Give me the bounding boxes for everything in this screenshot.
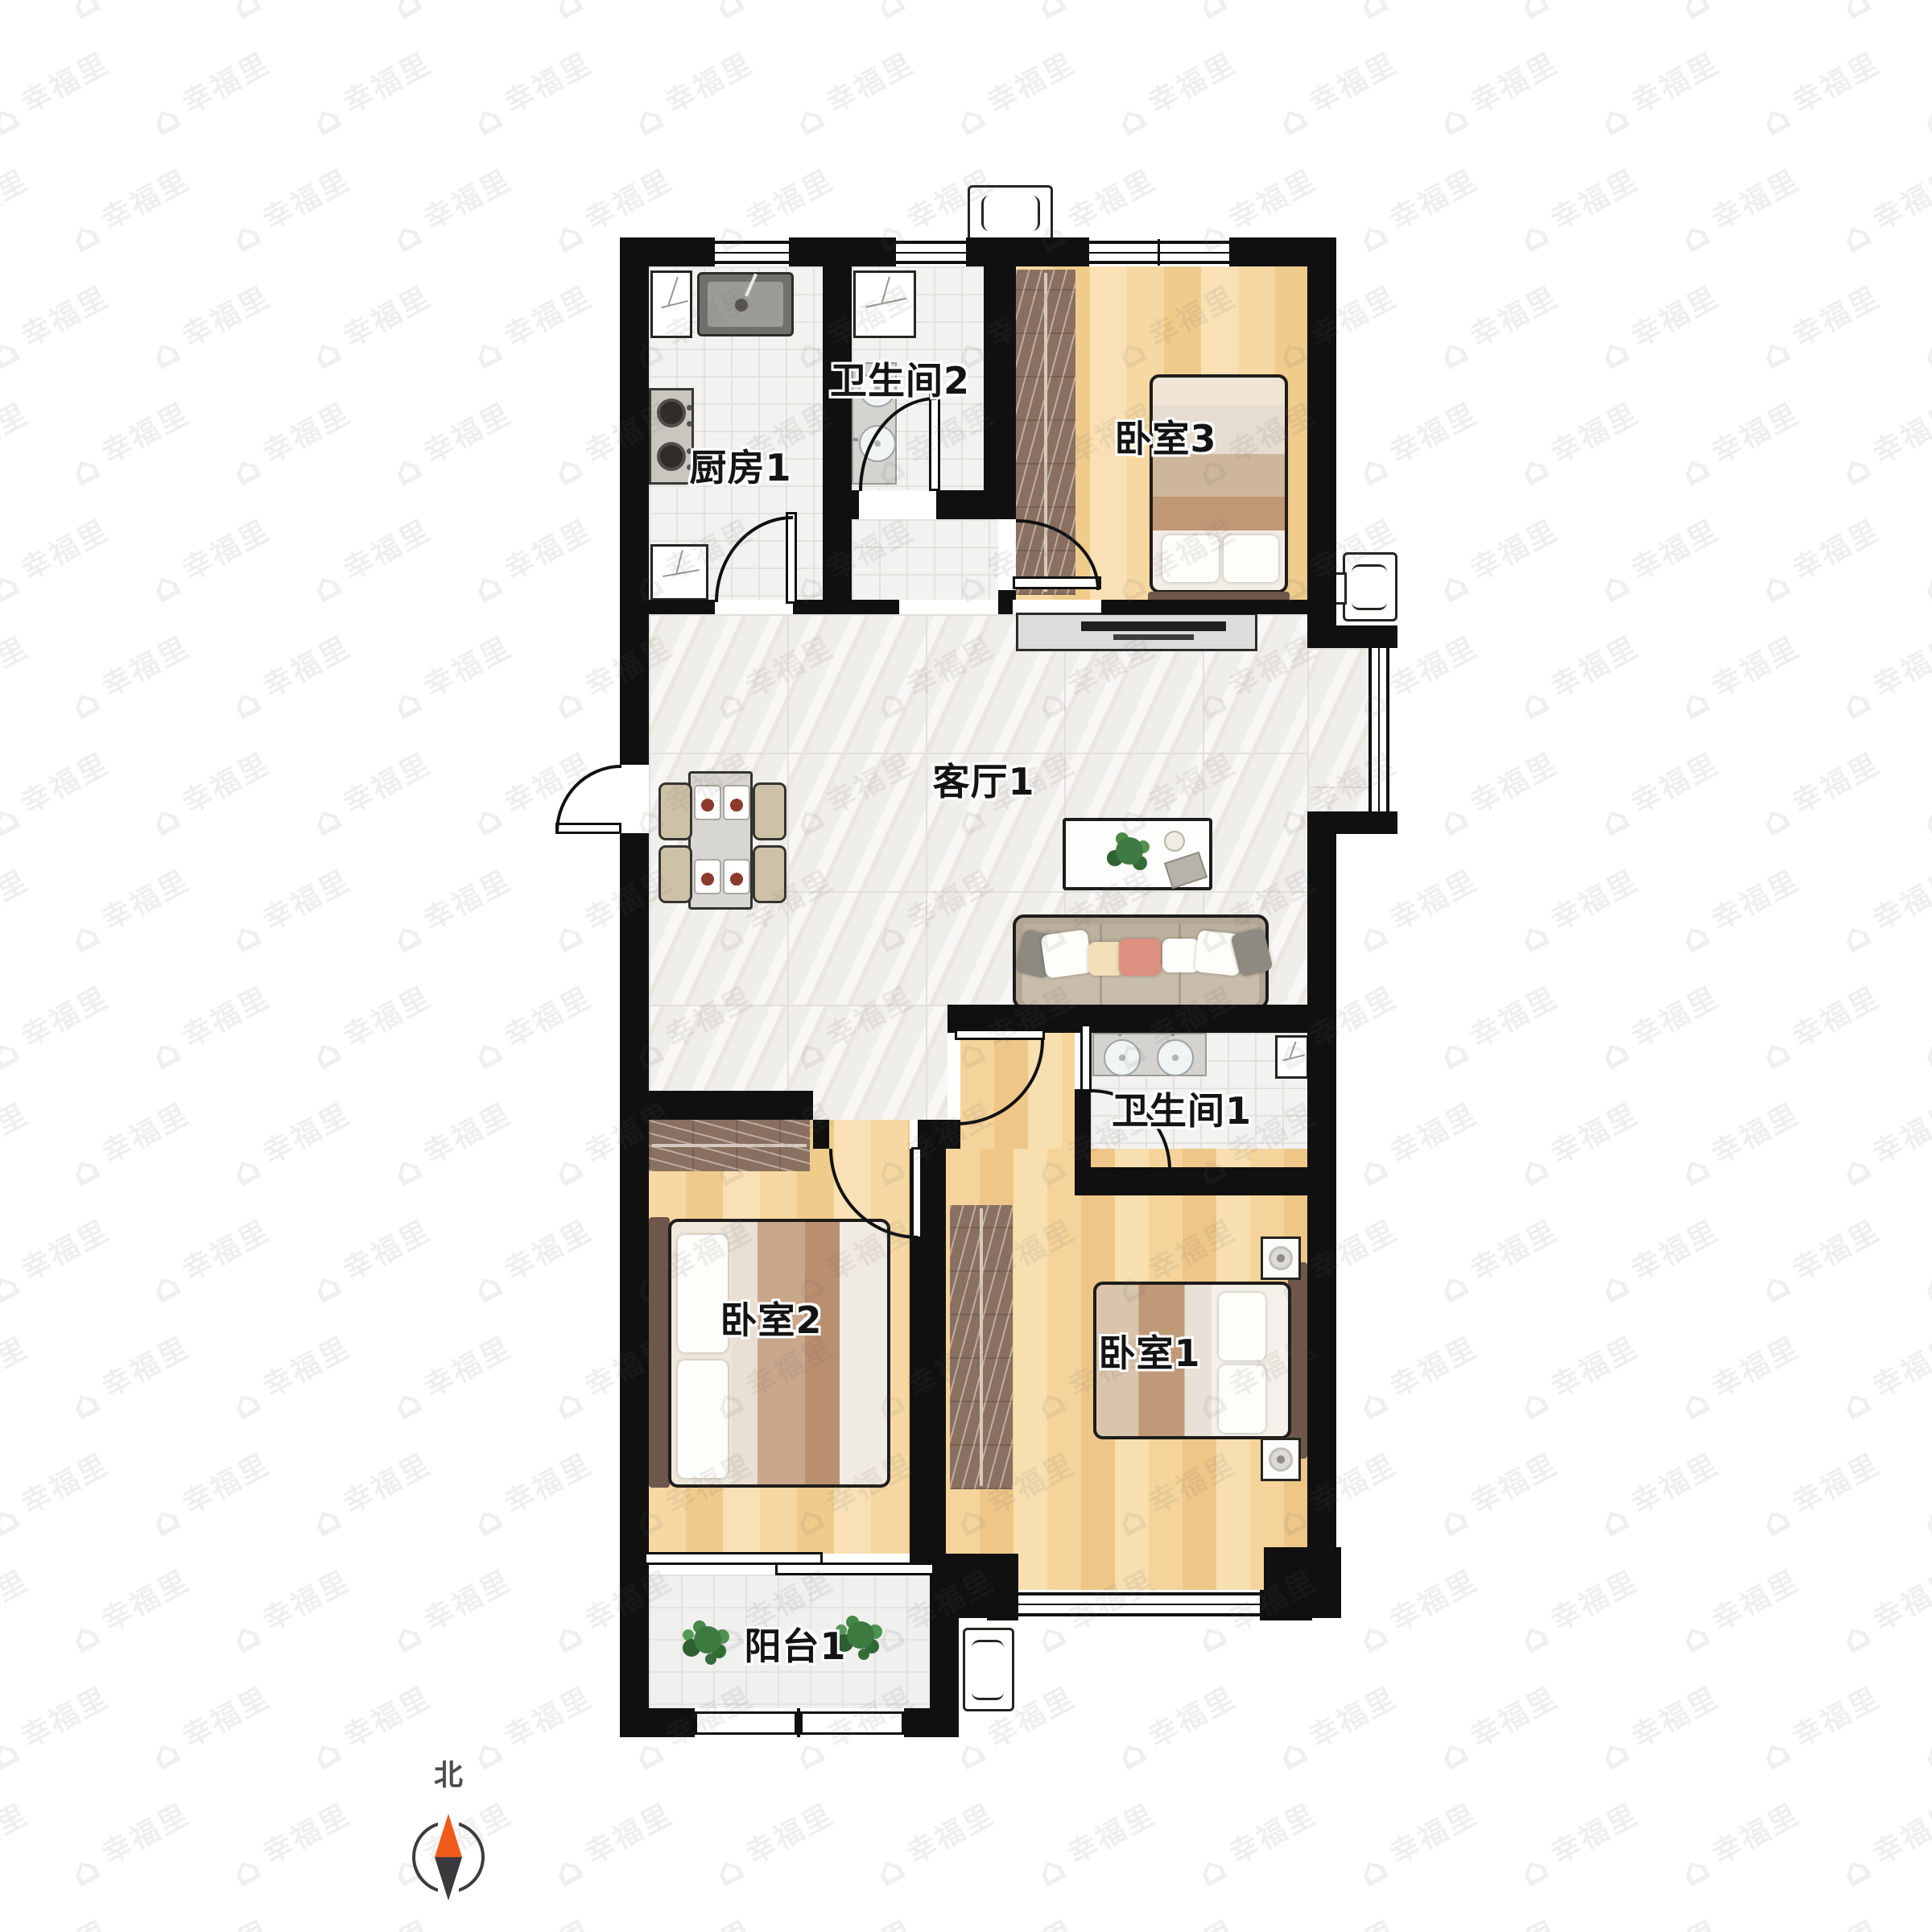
watermark: ⌂幸福里 <box>60 0 199 28</box>
wall-bathroom1-left <box>1075 1089 1091 1175</box>
house-icon: ⌂ <box>546 1843 592 1896</box>
watermark: ⌂幸福里 <box>1509 157 1648 261</box>
house-icon: ⌂ <box>1753 559 1799 612</box>
ac-unit-icon <box>963 1628 1014 1711</box>
house-icon: ⌂ <box>304 559 350 612</box>
house-icon: ⌂ <box>465 93 511 145</box>
watermark: ⌂幸福里 <box>1348 157 1487 261</box>
watermark: ⌂幸福里 <box>463 1674 601 1778</box>
dining-table <box>688 771 753 910</box>
house-icon: ⌂ <box>1834 1843 1880 1896</box>
house-icon: ⌂ <box>143 93 189 145</box>
watermark: ⌂幸福里 <box>302 1441 440 1545</box>
house-icon: ⌂ <box>1673 1143 1719 1195</box>
house-icon: ⌂ <box>304 1260 350 1312</box>
watermark: ⌂幸福里 <box>1912 741 1932 844</box>
house-icon: ⌂ <box>385 910 431 962</box>
watermark: ⌂幸福里 <box>946 1908 1084 1932</box>
house-icon: ⌂ <box>1109 1727 1155 1779</box>
wall-top <box>789 237 896 266</box>
watermark: ⌂幸福里 <box>382 157 521 261</box>
sofa <box>1013 914 1269 1009</box>
house-icon: ⌂ <box>0 793 28 845</box>
watermark: ⌂幸福里 <box>1107 1674 1245 1778</box>
house-icon: ⌂ <box>1753 1026 1799 1079</box>
house-icon: ⌂ <box>143 1026 189 1079</box>
watermark: ⌂幸福里 <box>1831 390 1932 494</box>
watermark: ⌂幸福里 <box>1348 1091 1487 1195</box>
house-icon: ⌂ <box>1109 93 1155 145</box>
house-icon: ⌂ <box>1512 1843 1558 1896</box>
house-icon: ⌂ <box>63 1377 109 1429</box>
house-icon: ⌂ <box>1431 326 1477 378</box>
watermark: ⌂幸福里 <box>1348 390 1487 494</box>
house-icon: ⌂ <box>1834 443 1880 495</box>
house-icon: ⌂ <box>465 326 511 378</box>
house-icon: ⌂ <box>707 1843 753 1896</box>
watermark: ⌂幸福里 <box>0 1908 119 1932</box>
watermark: ⌂幸福里 <box>1509 1558 1648 1662</box>
watermark: ⌂幸福里 <box>221 1558 360 1662</box>
bay-floor <box>1307 648 1368 811</box>
watermark: ⌂幸福里 <box>543 0 682 28</box>
watermark: ⌂幸福里 <box>1348 857 1487 961</box>
watermark: ⌂幸福里 <box>1912 1908 1932 1932</box>
watermark: ⌂幸福里 <box>1912 274 1932 378</box>
house-icon: ⌂ <box>143 559 189 612</box>
house-icon: ⌂ <box>143 1260 189 1312</box>
watermark: ⌂幸福里 <box>1107 1908 1245 1932</box>
watermark: ⌂幸福里 <box>60 390 199 494</box>
house-icon: ⌂ <box>465 559 511 612</box>
watermark: ⌂幸福里 <box>221 624 360 728</box>
window-mullion <box>1158 239 1160 266</box>
watermark: ⌂幸福里 <box>221 1324 360 1428</box>
watermark: ⌂幸福里 <box>1751 507 1889 611</box>
watermark: ⌂幸福里 <box>221 0 360 28</box>
watermark: ⌂幸福里 <box>1590 1674 1728 1778</box>
wall-bedroom3-left-stub <box>998 590 1016 600</box>
floorplan-canvas: 厨房1 卫生间2 卧室3 客厅1 卫生间1 卧室2 卧室1 阳台1 北 ⌂幸福里… <box>0 0 1932 1932</box>
kitchen-cabinet-icon <box>650 270 692 338</box>
house-icon: ⌂ <box>385 209 431 262</box>
house-icon: ⌂ <box>1753 793 1799 845</box>
house-icon: ⌂ <box>1431 1493 1477 1546</box>
watermark: ⌂幸福里 <box>60 1558 199 1662</box>
watermark: ⌂幸福里 <box>1590 1441 1728 1545</box>
bathroom1-vanity <box>1092 1033 1207 1076</box>
house-icon: ⌂ <box>0 559 28 612</box>
house-icon: ⌂ <box>304 1493 350 1546</box>
watermark: ⌂幸福里 <box>60 857 199 961</box>
house-icon: ⌂ <box>1673 1843 1719 1896</box>
balcony-window <box>800 1711 904 1735</box>
house-icon: ⌂ <box>626 93 672 145</box>
watermark: ⌂幸福里 <box>1509 390 1648 494</box>
bedroom2-bed-headboard <box>649 1217 670 1488</box>
watermark: ⌂幸福里 <box>1751 974 1889 1078</box>
balcony-window <box>695 1711 797 1735</box>
watermark: ⌂幸福里 <box>0 974 119 1078</box>
house-icon: ⌂ <box>1834 910 1880 962</box>
watermark: ⌂幸福里 <box>624 1908 762 1932</box>
house-icon: ⌂ <box>1673 676 1719 729</box>
house-icon: ⌂ <box>304 93 350 145</box>
watermark: ⌂幸福里 <box>1268 40 1406 144</box>
house-icon: ⌂ <box>304 793 350 845</box>
watermark: ⌂幸福里 <box>0 274 119 378</box>
house-icon: ⌂ <box>1431 1260 1477 1312</box>
watermark: ⌂幸福里 <box>60 157 199 261</box>
house-icon: ⌂ <box>546 443 592 495</box>
watermark: ⌂幸福里 <box>60 1324 199 1428</box>
house-icon: ⌂ <box>1351 1843 1397 1896</box>
house-icon: ⌂ <box>1753 93 1799 145</box>
room-label-kitchen: 厨房1 <box>689 439 791 492</box>
tv-console <box>1016 613 1257 651</box>
watermark: ⌂幸福里 <box>0 390 39 494</box>
watermark: ⌂幸福里 <box>141 1908 279 1932</box>
dining-chair <box>753 782 786 840</box>
washing-machine-icon <box>853 270 916 338</box>
house-icon: ⌂ <box>1512 443 1558 495</box>
house-icon: ⌂ <box>1592 1493 1638 1546</box>
house-icon: ⌂ <box>546 1610 592 1662</box>
watermark: ⌂幸福里 <box>543 1791 682 1895</box>
watermark: ⌂幸福里 <box>0 624 39 728</box>
watermark: ⌂幸福里 <box>1026 0 1165 28</box>
wall-bedroom1-bottom <box>1260 1590 1312 1620</box>
watermark: ⌂幸福里 <box>1751 274 1889 378</box>
house-icon: ⌂ <box>948 93 994 145</box>
house-icon: ⌂ <box>1914 793 1932 845</box>
watermark: ⌂幸福里 <box>0 1558 39 1662</box>
watermark: ⌂幸福里 <box>0 0 39 28</box>
house-icon: ⌂ <box>546 0 592 28</box>
house-icon: ⌂ <box>1431 93 1477 145</box>
watermark: ⌂幸福里 <box>0 40 119 144</box>
house-icon: ⌂ <box>1753 1727 1799 1779</box>
watermark: ⌂幸福里 <box>141 274 279 378</box>
wall-bedroom2-top <box>813 1120 829 1149</box>
house-icon: ⌂ <box>63 910 109 962</box>
house-icon: ⌂ <box>143 793 189 845</box>
house-icon: ⌂ <box>63 443 109 495</box>
house-icon: ⌂ <box>1914 559 1932 612</box>
wall-bathroom1-bottom <box>1075 1167 1307 1195</box>
watermark: ⌂幸福里 <box>1590 1207 1728 1311</box>
house-icon: ⌂ <box>304 1727 350 1779</box>
house-icon: ⌂ <box>465 1260 511 1312</box>
shower-icon <box>1275 1035 1309 1079</box>
house-icon: ⌂ <box>385 1143 431 1195</box>
watermark: ⌂幸福里 <box>1429 741 1567 844</box>
house-icon: ⌂ <box>304 326 350 378</box>
house-icon: ⌂ <box>546 910 592 962</box>
house-icon: ⌂ <box>1592 559 1638 612</box>
watermark: ⌂幸福里 <box>1187 0 1326 28</box>
house-icon: ⌂ <box>1753 1493 1799 1546</box>
ac-unit-icon <box>968 185 1053 245</box>
house-icon: ⌂ <box>1351 910 1397 962</box>
watermark: ⌂幸福里 <box>1831 1324 1932 1428</box>
lamp-icon <box>1269 1447 1293 1472</box>
house-icon: ⌂ <box>1190 1843 1236 1896</box>
house-icon: ⌂ <box>0 1026 28 1079</box>
watermark: ⌂幸福里 <box>1509 1324 1648 1428</box>
wall-bedroom2-top <box>620 1091 813 1120</box>
watermark: ⌂幸福里 <box>1751 1441 1889 1545</box>
bathroom2-window <box>896 241 966 264</box>
watermark: ⌂幸福里 <box>1348 0 1487 28</box>
house-icon: ⌂ <box>224 1377 270 1429</box>
watermark: ⌂幸福里 <box>1348 1558 1487 1662</box>
nightstand <box>1261 1236 1301 1280</box>
watermark: ⌂幸福里 <box>0 157 39 261</box>
watermark: ⌂幸福里 <box>1509 857 1648 961</box>
watermark: ⌂幸福里 <box>1751 40 1889 144</box>
house-icon: ⌂ <box>385 676 431 729</box>
watermark: ⌂幸福里 <box>141 1441 279 1545</box>
watermark: ⌂幸福里 <box>382 0 521 28</box>
watermark: ⌂幸福里 <box>865 0 1004 28</box>
watermark: ⌂幸福里 <box>141 974 279 1078</box>
watermark: ⌂幸福里 <box>1509 1791 1648 1895</box>
house-icon: ⌂ <box>546 676 592 729</box>
bedroom1-window <box>1018 1592 1260 1616</box>
bedroom2-wardrobe <box>649 1120 810 1171</box>
watermark: ⌂幸福里 <box>60 1091 199 1195</box>
watermark: ⌂幸福里 <box>302 1207 440 1311</box>
wall-bay-bottom <box>1307 811 1397 834</box>
house-icon: ⌂ <box>1270 1727 1316 1779</box>
watermark: ⌂幸福里 <box>1912 974 1932 1078</box>
house-icon: ⌂ <box>304 1026 350 1079</box>
watermark: ⌂幸福里 <box>382 1558 521 1662</box>
watermark: ⌂幸福里 <box>463 507 601 611</box>
livingroom-bay-window <box>1368 648 1389 811</box>
house-icon: ⌂ <box>546 1143 592 1195</box>
house-icon: ⌂ <box>1351 1377 1397 1429</box>
watermark: ⌂幸福里 <box>1429 507 1567 611</box>
house-icon: ⌂ <box>787 93 833 145</box>
house-icon: ⌂ <box>1673 1610 1719 1662</box>
watermark: ⌂幸福里 <box>302 507 440 611</box>
wall-bedroom2-top <box>918 1120 960 1149</box>
house-icon: ⌂ <box>63 1610 109 1662</box>
watermark: ⌂幸福里 <box>463 40 601 144</box>
watermark: ⌂幸福里 <box>1429 1908 1567 1932</box>
watermark: ⌂幸福里 <box>0 1207 119 1311</box>
house-icon: ⌂ <box>1431 559 1477 612</box>
watermark: ⌂幸福里 <box>0 1324 39 1428</box>
wall-bathroom2-bottom <box>823 490 859 519</box>
house-icon: ⌂ <box>1351 443 1397 495</box>
watermark: ⌂幸福里 <box>141 1674 279 1778</box>
house-icon: ⌂ <box>1190 1610 1236 1662</box>
watermark: ⌂幸福里 <box>1590 274 1728 378</box>
house-icon: ⌂ <box>224 910 270 962</box>
house-icon: ⌂ <box>1351 0 1397 28</box>
dining-chair <box>658 782 692 840</box>
bedroom1-wardrobe <box>950 1205 1013 1489</box>
wall-left <box>620 237 649 765</box>
room-label-bathroom2: 卫生间2 <box>830 352 970 405</box>
wall-bedroom3-bottom <box>998 600 1013 614</box>
book-icon <box>1164 852 1207 890</box>
watermark: ⌂幸福里 <box>1831 857 1932 961</box>
watermark: ⌂幸福里 <box>1509 0 1648 28</box>
watermark: ⌂幸福里 <box>1912 507 1932 611</box>
watermark: ⌂幸福里 <box>0 1441 119 1545</box>
house-icon: ⌂ <box>63 1143 109 1195</box>
watermark: ⌂幸福里 <box>1670 1091 1809 1195</box>
stove <box>649 388 694 485</box>
wall-bedroom3-bottom <box>1101 600 1314 614</box>
watermark: ⌂幸福里 <box>1187 1791 1326 1895</box>
house-icon: ⌂ <box>1512 0 1558 28</box>
watermark: ⌂幸福里 <box>1429 40 1567 144</box>
watermark: ⌂幸福里 <box>302 1908 440 1932</box>
room-label-living: 客厅1 <box>932 753 1034 806</box>
watermark: ⌂幸福里 <box>60 624 199 728</box>
watermark: ⌂幸福里 <box>141 1207 279 1311</box>
wall-bathroom2-bottom <box>936 490 1016 519</box>
house-icon: ⌂ <box>1914 93 1932 145</box>
house-icon: ⌂ <box>546 1377 592 1429</box>
watermark: ⌂幸福里 <box>302 1674 440 1778</box>
bedroom2-bed <box>668 1219 890 1488</box>
watermark: ⌂幸福里 <box>221 1091 360 1195</box>
room-label-bedroom3: 卧室3 <box>1114 410 1216 463</box>
house-icon: ⌂ <box>1512 209 1558 262</box>
compass-needle-north <box>435 1814 462 1857</box>
house-icon: ⌂ <box>1512 910 1558 962</box>
house-icon: ⌂ <box>1753 1260 1799 1312</box>
house-icon: ⌂ <box>1512 676 1558 729</box>
house-icon: ⌂ <box>1029 1843 1075 1896</box>
watermark: ⌂幸福里 <box>1670 1324 1809 1428</box>
house-icon: ⌂ <box>1673 209 1719 262</box>
watermark: ⌂幸福里 <box>1509 624 1648 728</box>
house-icon: ⌂ <box>1431 793 1477 845</box>
fridge-icon <box>650 544 708 601</box>
room-label-bathroom1: 卫生间1 <box>1112 1082 1252 1135</box>
hall-floor <box>852 519 998 600</box>
house-icon: ⌂ <box>224 443 270 495</box>
watermark: ⌂幸福里 <box>0 741 119 844</box>
watermark: ⌂幸福里 <box>1912 40 1932 144</box>
watermark: ⌂幸福里 <box>1751 741 1889 844</box>
house-icon: ⌂ <box>1351 1143 1397 1195</box>
house-icon: ⌂ <box>1834 676 1880 729</box>
house-icon: ⌂ <box>1673 0 1719 28</box>
bathroom1-door-leaf <box>1080 1024 1092 1092</box>
room-label-bedroom1: 卧室1 <box>1098 1324 1200 1377</box>
house-icon: ⌂ <box>0 1493 28 1546</box>
entrance-door-arc <box>555 765 621 832</box>
watermark: ⌂幸福里 <box>1751 1908 1889 1932</box>
house-icon: ⌂ <box>1673 443 1719 495</box>
watermark: ⌂幸福里 <box>382 390 521 494</box>
watermark: ⌂幸福里 <box>1590 40 1728 144</box>
watermark: ⌂幸福里 <box>1429 1674 1567 1778</box>
watermark: ⌂幸福里 <box>0 857 39 961</box>
watermark: ⌂幸福里 <box>0 1091 39 1195</box>
house-icon: ⌂ <box>385 443 431 495</box>
house-icon: ⌂ <box>1834 1610 1880 1662</box>
watermark: ⌂幸福里 <box>1590 974 1728 1078</box>
watermark: ⌂幸福里 <box>1429 1441 1567 1545</box>
kitchen-sink <box>697 272 794 336</box>
house-icon: ⌂ <box>224 676 270 729</box>
house-icon: ⌂ <box>1834 1377 1880 1429</box>
house-icon: ⌂ <box>1914 1260 1932 1312</box>
watermark: ⌂幸福里 <box>141 741 279 844</box>
watermark: ⌂幸福里 <box>1831 1558 1932 1662</box>
room-label-balcony: 阳台1 <box>744 1617 846 1670</box>
wall-top <box>1229 237 1336 266</box>
watermark: ⌂幸福里 <box>1429 1207 1567 1311</box>
watermark: ⌂幸福里 <box>1268 1674 1406 1778</box>
wall-bathroom2-right <box>984 266 1016 490</box>
house-icon: ⌂ <box>63 0 109 28</box>
house-icon: ⌂ <box>0 1727 28 1779</box>
flowers-icon <box>1116 837 1143 865</box>
house-icon: ⌂ <box>1673 1377 1719 1429</box>
house-icon: ⌂ <box>1512 1610 1558 1662</box>
watermark: ⌂幸福里 <box>463 1908 601 1932</box>
house-icon: ⌂ <box>224 0 270 28</box>
house-icon: ⌂ <box>465 1493 511 1546</box>
house-icon: ⌂ <box>546 209 592 262</box>
nightstand <box>1261 1438 1301 1481</box>
compass-needle-south <box>435 1857 462 1901</box>
house-icon: ⌂ <box>868 1843 914 1896</box>
house-icon: ⌂ <box>1431 1727 1477 1779</box>
watermark: ⌂幸福里 <box>1590 1908 1728 1932</box>
house-icon: ⌂ <box>1029 1610 1075 1662</box>
plant-icon <box>694 1626 721 1653</box>
house-icon: ⌂ <box>465 1026 511 1079</box>
house-icon: ⌂ <box>1753 326 1799 378</box>
watermark: ⌂幸福里 <box>785 40 923 144</box>
watermark: ⌂幸福里 <box>624 40 762 144</box>
watermark: ⌂幸福里 <box>1107 40 1245 144</box>
watermark: ⌂幸福里 <box>1348 1324 1487 1428</box>
watermark: ⌂幸福里 <box>1509 1091 1648 1195</box>
house-icon: ⌂ <box>385 1610 431 1662</box>
watermark: ⌂幸福里 <box>785 1908 923 1932</box>
watermark: ⌂幸福里 <box>1590 741 1728 844</box>
dining-chair <box>753 845 786 903</box>
sofa-pillow <box>1041 929 1093 979</box>
watermark: ⌂幸福里 <box>382 1091 521 1195</box>
dish-icon <box>1164 831 1185 852</box>
watermark: ⌂幸福里 <box>1348 1791 1487 1895</box>
house-icon: ⌂ <box>143 1493 189 1546</box>
house-icon: ⌂ <box>1592 1260 1638 1312</box>
house-icon: ⌂ <box>1351 209 1397 262</box>
watermark: ⌂幸福里 <box>302 741 440 844</box>
watermark: ⌂幸福里 <box>1831 1091 1932 1195</box>
watermark: ⌂幸福里 <box>1912 1441 1932 1545</box>
wall-kitchen-bottom <box>620 600 715 614</box>
watermark: ⌂幸福里 <box>463 274 601 378</box>
house-icon: ⌂ <box>465 1727 511 1779</box>
house-icon: ⌂ <box>63 676 109 729</box>
house-icon: ⌂ <box>1592 793 1638 845</box>
